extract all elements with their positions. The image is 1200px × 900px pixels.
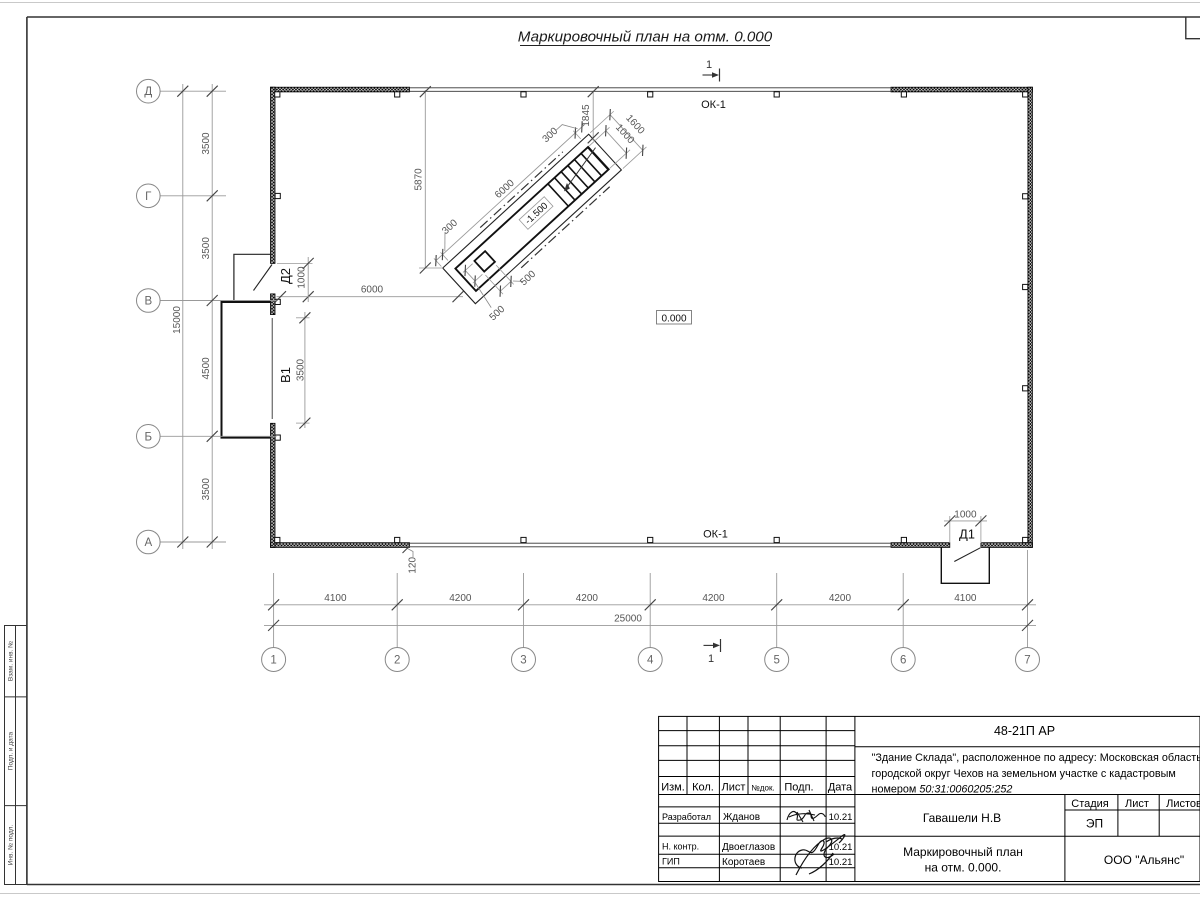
svg-text:"Здание Склада", расположенное: "Здание Склада", расположенное по адресу…: [872, 752, 1200, 764]
svg-text:ГИП: ГИП: [662, 857, 680, 867]
svg-text:3500: 3500: [201, 237, 212, 260]
svg-text:Гавашели Н.В: Гавашели Н.В: [923, 811, 1001, 825]
svg-text:1845: 1845: [581, 104, 592, 127]
svg-text:Подп. и дата: Подп. и дата: [8, 731, 15, 770]
svg-text:на отм. 0.000.: на отм. 0.000.: [925, 861, 1002, 875]
svg-text:Н. контр.: Н. контр.: [662, 842, 699, 852]
svg-text:3500: 3500: [201, 132, 212, 155]
svg-text:0.000: 0.000: [661, 313, 686, 324]
svg-text:Дата: Дата: [828, 782, 853, 794]
svg-text:7: 7: [1024, 655, 1030, 667]
svg-text:4200: 4200: [702, 593, 725, 604]
svg-text:ЭП: ЭП: [1086, 817, 1103, 831]
svg-text:Коротаев: Коротаев: [722, 857, 765, 868]
svg-text:1: 1: [708, 653, 714, 665]
svg-text:5870: 5870: [414, 168, 425, 191]
svg-text:Стадия: Стадия: [1071, 798, 1109, 810]
svg-text:25000: 25000: [614, 614, 642, 625]
svg-text:3500: 3500: [296, 358, 307, 381]
svg-text:2: 2: [394, 655, 400, 667]
svg-text:А: А: [144, 537, 152, 549]
svg-text:4: 4: [647, 655, 654, 667]
svg-text:номером 50:31:0060205:252: номером 50:31:0060205:252: [872, 784, 1013, 796]
svg-text:В1: В1: [278, 367, 293, 383]
svg-text:Д2: Д2: [278, 268, 293, 284]
svg-text:ООО "Альянс": ООО "Альянс": [1104, 853, 1184, 867]
svg-text:4200: 4200: [449, 593, 472, 604]
svg-text:Лист: Лист: [1125, 798, 1149, 810]
svg-text:Подп.: Подп.: [784, 782, 813, 794]
svg-text:120: 120: [408, 557, 419, 574]
svg-text:1: 1: [270, 655, 276, 667]
svg-text:3500: 3500: [201, 478, 212, 501]
svg-text:Кол.: Кол.: [692, 782, 714, 794]
svg-text:6: 6: [900, 655, 906, 667]
svg-text:10.21: 10.21: [829, 857, 853, 868]
svg-text:48-21П АР: 48-21П АР: [994, 724, 1055, 738]
svg-text:Двоеглазов: Двоеглазов: [722, 842, 775, 853]
svg-text:6000: 6000: [361, 285, 384, 296]
svg-text:5: 5: [773, 655, 779, 667]
svg-text:Маркировочный план: Маркировочный план: [903, 845, 1023, 859]
svg-text:Б: Б: [145, 431, 153, 443]
svg-text:Г: Г: [145, 191, 152, 203]
svg-text:Д: Д: [144, 86, 152, 98]
svg-text:1000: 1000: [296, 266, 307, 289]
svg-text:Листов: Листов: [1166, 798, 1200, 810]
svg-text:10.21: 10.21: [829, 812, 853, 823]
svg-text:1000: 1000: [954, 510, 977, 521]
svg-text:В: В: [144, 296, 152, 308]
svg-text:3: 3: [520, 655, 526, 667]
svg-text:Лист: Лист: [722, 782, 746, 794]
svg-text:Маркировочный план на отм. 0.0: Маркировочный план на отм. 0.000: [518, 29, 773, 46]
svg-text:15000: 15000: [172, 306, 183, 334]
svg-text:Изм.: Изм.: [661, 782, 685, 794]
svg-text:ОК-1: ОК-1: [703, 529, 728, 541]
svg-text:Д1: Д1: [959, 527, 975, 542]
svg-text:1: 1: [706, 59, 712, 71]
svg-text:4100: 4100: [324, 593, 347, 604]
svg-text:4500: 4500: [201, 357, 212, 380]
svg-text:ОК-1: ОК-1: [701, 99, 726, 111]
svg-text:Разработал: Разработал: [662, 812, 711, 822]
svg-text:4200: 4200: [829, 593, 852, 604]
svg-text:4200: 4200: [576, 593, 599, 604]
svg-text:Жданов: Жданов: [723, 812, 760, 823]
svg-text:Инв. № подл.: Инв. № подл.: [8, 825, 15, 866]
svg-text:№док.: №док.: [751, 784, 774, 793]
svg-text:4100: 4100: [954, 593, 977, 604]
svg-text:Взам. инв. №: Взам. инв. №: [8, 641, 15, 681]
svg-text:городской округ Чехов на земел: городской округ Чехов на земельном участ…: [872, 768, 1176, 780]
